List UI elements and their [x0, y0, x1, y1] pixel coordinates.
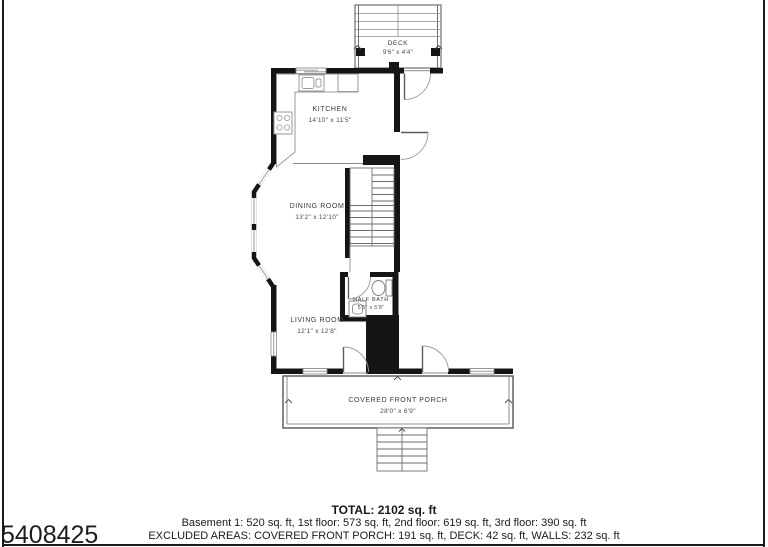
deck-post	[431, 48, 440, 56]
total-area-text: TOTAL: 2102 sq. ft	[0, 504, 768, 517]
deck-dims: 9'6" x 4'4"	[383, 49, 413, 56]
living-room-window	[271, 332, 277, 356]
floorplan-drawing: DECK 9'6" x 4'4"	[0, 0, 768, 547]
porch-label: COVERED FRONT PORCH	[348, 397, 447, 404]
front-door	[422, 346, 449, 373]
deck-label: DECK	[388, 40, 409, 47]
living-room-label: LIVING ROOM	[290, 317, 343, 324]
frame-border-bottom	[2, 544, 765, 546]
kitchen-window	[296, 68, 326, 74]
front-window-right	[470, 369, 494, 375]
porch-door	[343, 347, 369, 373]
porch-dims: 28'0" x 6'9"	[380, 408, 416, 415]
bay-window	[254, 162, 274, 288]
half-bath-dims: 5'5" x 5'8"	[358, 305, 385, 311]
dining-room-label: DINING ROOM	[290, 203, 345, 210]
frame-border-right	[763, 0, 765, 547]
porch-steps	[377, 428, 427, 471]
frame-border-left	[2, 0, 4, 547]
floor-areas-text: Basement 1: 520 sq. ft, 1st floor: 573 s…	[0, 517, 768, 530]
half-bath-door	[349, 277, 371, 299]
fridge	[338, 74, 358, 92]
hall-door	[401, 133, 428, 160]
stove	[274, 112, 292, 134]
back-door	[404, 71, 431, 100]
staircase	[350, 168, 394, 246]
floorplan-page: DECK 9'6" x 4'4"	[0, 0, 768, 547]
dining-room-dims: 13'2" x 12'10"	[295, 214, 339, 221]
front-window-left	[303, 369, 327, 375]
deck-post	[356, 48, 365, 56]
kitchen-sink	[299, 75, 324, 91]
kitchen-label: KITCHEN	[313, 106, 348, 113]
half-bath-label: HALF BATH	[353, 297, 389, 303]
deck: DECK 9'6" x 4'4"	[355, 5, 441, 68]
area-summary: TOTAL: 2102 sq. ft Basement 1: 520 sq. f…	[0, 504, 768, 542]
living-room-dims: 12'1" x 12'8"	[297, 328, 337, 335]
excluded-areas-text: EXCLUDED AREAS: COVERED FRONT PORCH: 191…	[0, 530, 768, 542]
toilet	[372, 280, 392, 296]
kitchen-dims: 14'10" x 11'5"	[309, 117, 352, 124]
